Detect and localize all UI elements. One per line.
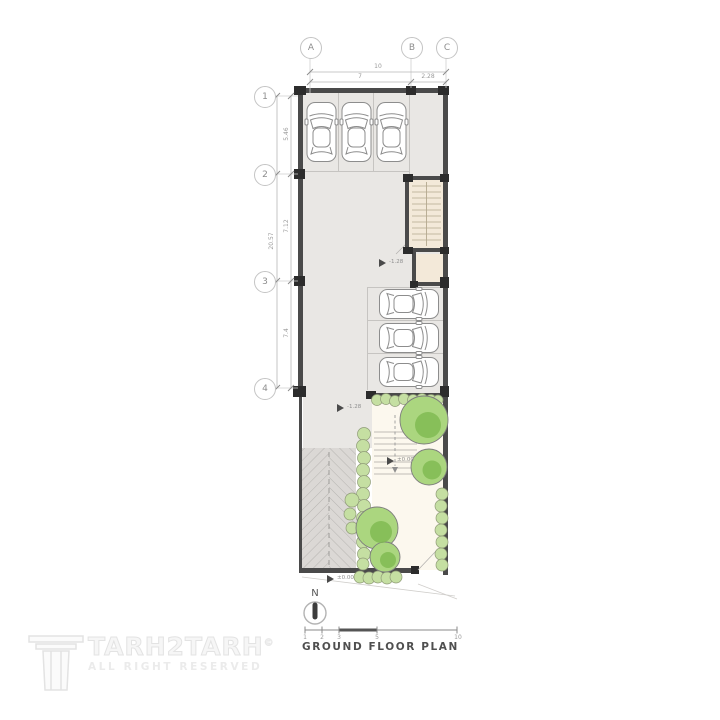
grid-bubble-3: 3: [254, 271, 276, 293]
car: [380, 288, 439, 321]
grid-bubble-b: B: [401, 37, 423, 59]
grid-bubble-c: C: [436, 37, 458, 59]
top-parking-cars: [305, 103, 408, 162]
ramp-hatch-left: [302, 448, 329, 568]
dim-top-total: 10: [368, 64, 388, 70]
stair-lobby-floor: [416, 254, 443, 282]
dim-left-1-2: 5.46: [284, 119, 290, 149]
dim-left-total: 20.57: [269, 226, 275, 256]
grid-bubble-2: 2: [254, 164, 276, 186]
plan-drawing: [0, 0, 720, 720]
scale-bar: [305, 627, 457, 634]
car: [380, 356, 439, 389]
plan-title: GROUND FLOOR PLAN: [302, 641, 459, 653]
car: [340, 103, 373, 162]
grid-bubble-4: 4: [254, 378, 276, 400]
car: [380, 322, 439, 355]
dim-left-3-4: 7.4: [284, 318, 290, 348]
dim-top-right: 2.28: [418, 74, 438, 80]
grid-bubble-a: A: [300, 37, 322, 59]
dim-top-left: 7: [350, 74, 370, 80]
car: [305, 103, 338, 162]
floor-plan-page: TARH2TARH© ALL RIGHT RESERVED: [0, 0, 720, 720]
north-arrow: [304, 602, 326, 624]
grid-bubble-1: 1: [254, 86, 276, 108]
car: [375, 103, 408, 162]
dim-left-2-3: 7.12: [284, 211, 290, 241]
stair-floor: [409, 180, 443, 250]
level-label-stair: -1.28: [389, 260, 403, 266]
level-label-entry: ±0.00: [337, 576, 354, 582]
level-label-garage: -1.28: [347, 405, 361, 411]
level-marker-icon: [327, 575, 334, 583]
level-label-yard: ±0.00: [397, 458, 414, 464]
middle-parking-cars: [380, 288, 439, 389]
north-label: N: [307, 588, 323, 599]
